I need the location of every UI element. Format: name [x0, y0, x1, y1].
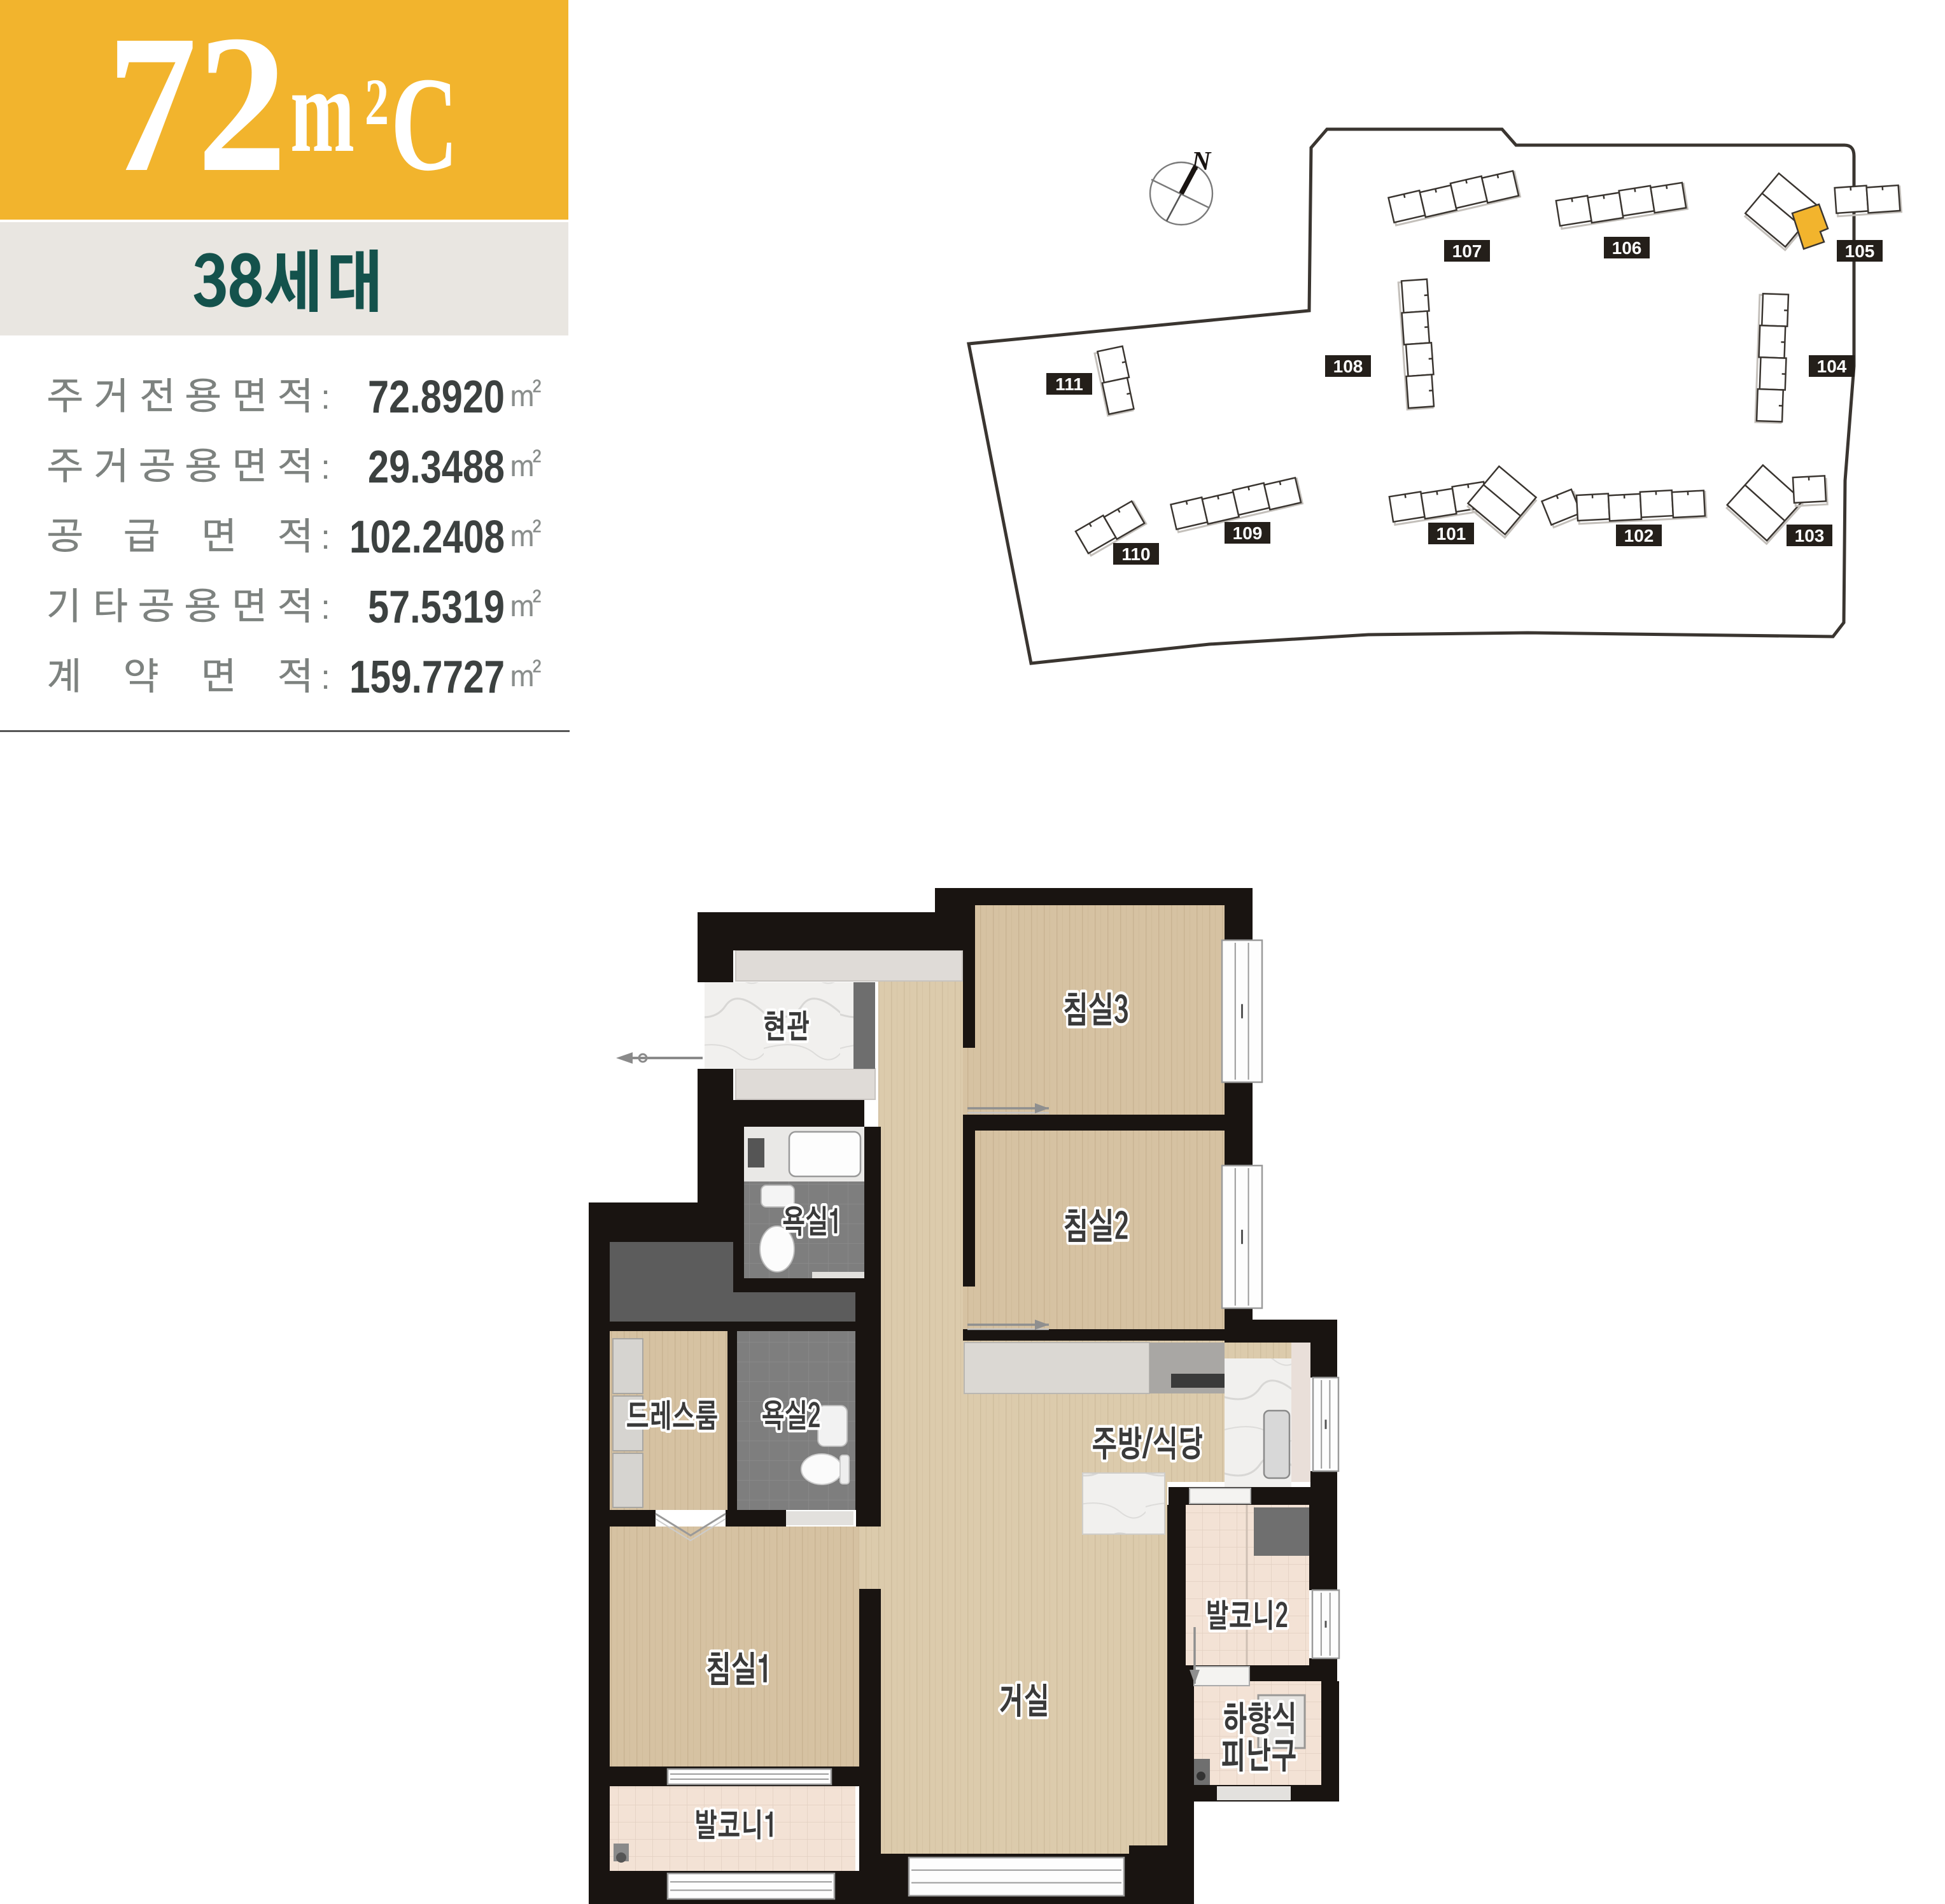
svg-text:102.2408: 102.2408 [349, 512, 505, 563]
svg-text::: : [321, 518, 330, 556]
svg-text:C: C [391, 49, 458, 199]
svg-text:106: 106 [1612, 238, 1642, 258]
svg-text:104: 104 [1817, 356, 1847, 376]
svg-text:108: 108 [1333, 356, 1363, 376]
svg-text:m: m [290, 44, 355, 178]
svg-text::: : [321, 658, 330, 696]
svg-text:101: 101 [1436, 524, 1466, 544]
svg-text::: : [321, 448, 330, 486]
svg-text:102: 102 [1624, 526, 1654, 546]
svg-text:29.3488: 29.3488 [368, 442, 505, 493]
svg-text:72.8920: 72.8920 [368, 372, 505, 423]
svg-text::: : [321, 378, 330, 416]
svg-text:N: N [1191, 147, 1212, 176]
svg-text:109: 109 [1233, 523, 1263, 543]
svg-text:105: 105 [1845, 241, 1875, 261]
svg-text:110: 110 [1121, 544, 1150, 564]
svg-text:57.5319: 57.5319 [368, 582, 505, 633]
svg-text:103: 103 [1795, 526, 1825, 546]
svg-text:107: 107 [1452, 241, 1482, 261]
svg-text:111: 111 [1055, 374, 1083, 394]
svg-text:72: 72 [107, 0, 287, 213]
svg-text:159.7727: 159.7727 [349, 652, 505, 703]
svg-text:2: 2 [365, 66, 389, 139]
svg-text::: : [321, 588, 330, 626]
